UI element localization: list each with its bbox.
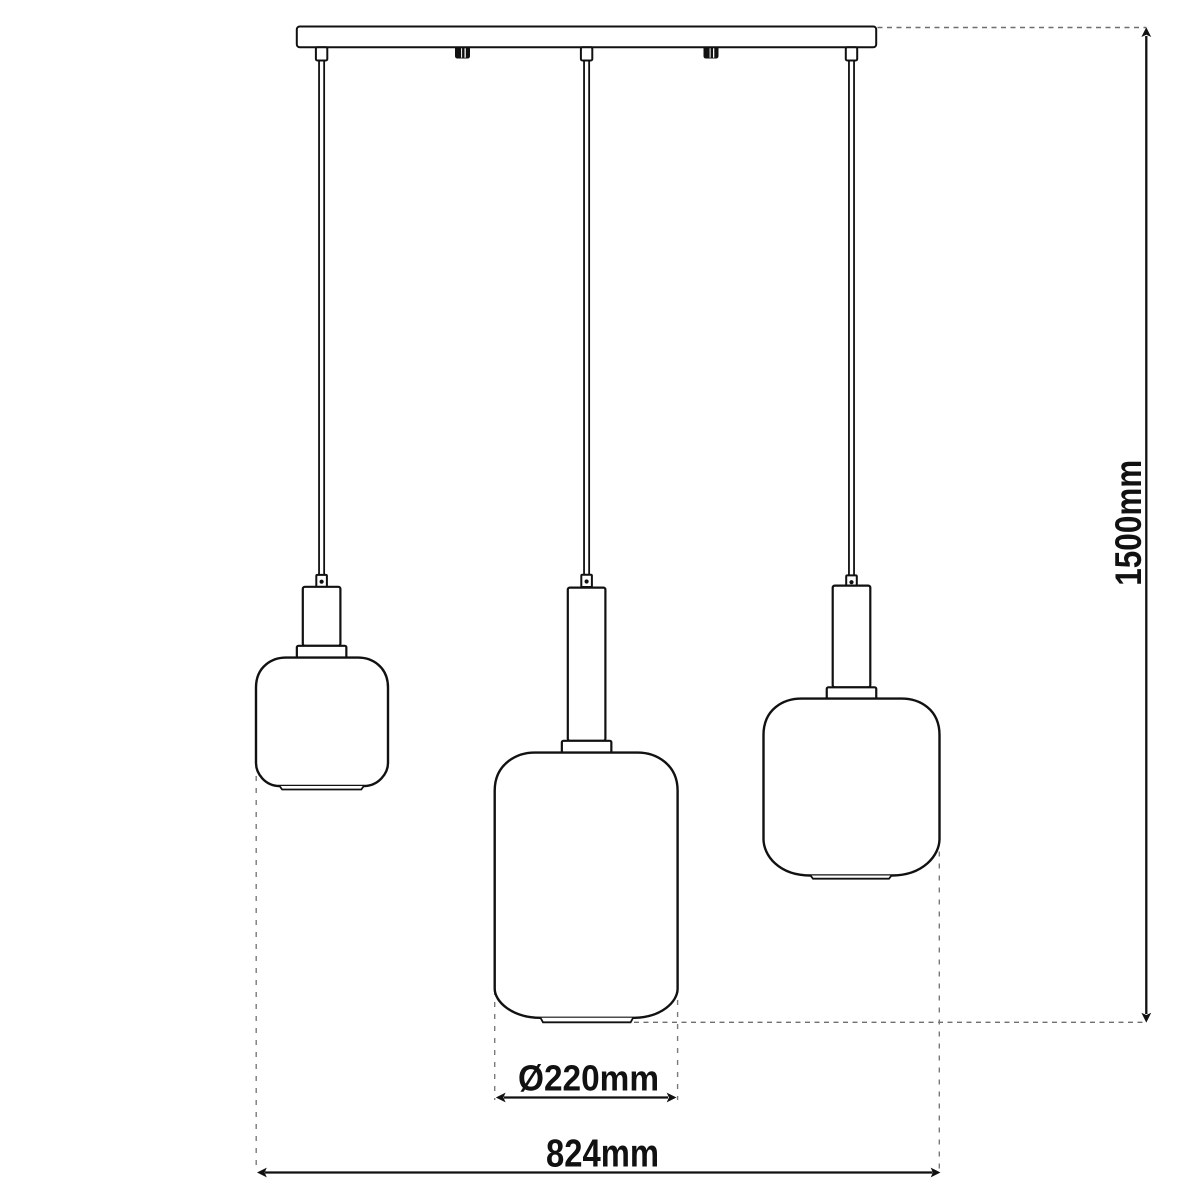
svg-text:824mm: 824mm xyxy=(546,1133,659,1176)
svg-text:Ø220mm: Ø220mm xyxy=(518,1058,659,1099)
svg-text:1500mm: 1500mm xyxy=(1108,460,1149,586)
